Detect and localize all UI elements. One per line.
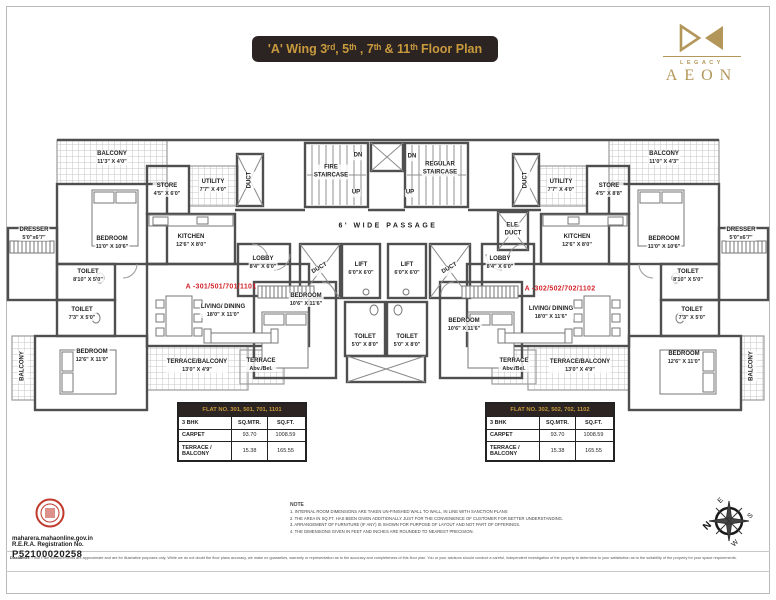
room-label-balcony-bottom-left: BALCONY xyxy=(18,351,28,381)
room-label-toilet-upper-right: TOILET8'10" X 5'0" xyxy=(672,269,704,283)
flat-table-right: FLAT NO. 302, 502, 702, 1102 3 BHK SQ.MT… xyxy=(485,402,615,462)
room-label-lift-2: LIFT6'0"X 6'0" xyxy=(393,262,420,276)
note-item: 2. THE AREA IN SQ.FT. HAS BEEN GIVEN ADD… xyxy=(290,516,540,523)
table-row: TERRACE / BALCONY 15.38 165.55 xyxy=(179,441,305,460)
note-item: 1. INTERNAL ROOM DIMENSIONS ARE TAKEN UN… xyxy=(290,509,540,516)
room-label-kitchen-left: KITCHEN12'6" X 8'0" xyxy=(175,234,207,248)
room-label-toilet-upper-left: TOILET8'10" X 5'0" xyxy=(72,269,104,283)
page-title: 'A' Wing 3ʳᵈ, 5ᵗʰ , 7ᵗʰ & 11ᵗʰ Floor Pla… xyxy=(252,36,498,62)
passage-label: 6' WIDE PASSAGE xyxy=(338,223,439,232)
rera-stamp-icon xyxy=(34,497,66,529)
room-label-bedroom-center-right: BEDROOM10'6" X 11'6" xyxy=(447,318,482,332)
legacy-monogram-icon xyxy=(678,24,726,52)
room-label-duct-top-right: DUCT xyxy=(521,172,531,189)
room-label-bedroom-center-left: BEDROOM10'6" X 11'6" xyxy=(289,293,324,307)
svg-text:E: E xyxy=(717,496,725,504)
room-label-bedroom-bottom-left: BEDROOM12'6" X 11'0" xyxy=(75,349,110,363)
unit-label-right: A -302/502/702/1102 xyxy=(524,286,597,295)
room-label-living-right: LIVING/ DINING18'0" X 11'6" xyxy=(528,306,574,320)
room-label-regular-staircase: REGULARSTAIRCASE xyxy=(422,162,458,177)
room-label-bedroom-top-left: BEDROOM11'0" X 10'6" xyxy=(95,236,130,250)
room-label-balcony-bottom-right: BALCONY xyxy=(747,351,757,381)
divider xyxy=(6,571,770,572)
room-label-terrace-abv-right: TERRACEAbv./Bel. xyxy=(498,358,529,372)
table-row: 3 BHK SQ.MTR. SQ.FT. xyxy=(179,416,305,429)
room-label-balcony-top-left: BALCONY11'3" X 4'0" xyxy=(96,151,128,165)
room-label-duct-top-left: DUCT xyxy=(245,172,255,189)
svg-text:S: S xyxy=(746,512,754,520)
table-row: 3 BHK SQ.MTR. SQ.FT. xyxy=(487,416,613,429)
flat-table-left: FLAT NO. 301, 501, 701, 1101 3 BHK SQ.MT… xyxy=(177,402,307,462)
room-label-dresser-left: DRESSER5'0"x6'7" xyxy=(18,227,49,241)
table-row: TERRACE / BALCONY 15.38 165.55 xyxy=(487,441,613,460)
room-label-toilet-lower-right: TOILET7'3" X 5'0" xyxy=(678,307,707,321)
room-label-balcony-top-right: BALCONY11'0" X 4'3" xyxy=(648,151,680,165)
brand-aeon-text: AEON xyxy=(666,67,738,85)
room-label-bedroom-bottom-right: BEDROOM12'6" X 11'0" xyxy=(667,351,702,365)
room-label-utility-left: UTILITY7'7" X 4'0" xyxy=(199,179,228,193)
notes-heading: NOTE xyxy=(290,502,540,508)
stair-up-left: UP xyxy=(351,189,361,197)
note-item: 3. ARRANGEMENT OF FURNITURE (IF ANY) IS … xyxy=(290,522,540,529)
room-label-lift-1: LIFT6'0"X 6'0" xyxy=(347,262,374,276)
logo-divider xyxy=(663,56,741,57)
brand-logo: LEGACY AEON xyxy=(654,24,750,85)
title-text: 'A' Wing 3ʳᵈ, 5ᵗʰ , 7ᵗʰ & 11ᵗʰ Floor Pla… xyxy=(268,42,482,56)
notes-block: NOTE 1. INTERNAL ROOM DIMENSIONS ARE TAK… xyxy=(290,502,540,536)
room-label-store-right: STORE4'5" X 8'8" xyxy=(595,183,624,197)
room-label-toilet-lower-left: TOILET7'3" X 5'0" xyxy=(68,307,97,321)
room-label-terrace-balcony-right: TERRACE/BALCONY13'0" X 4'9" xyxy=(549,359,611,373)
compass-icon: N E S W xyxy=(698,490,760,552)
room-label-dresser-right: DRESSER5'0"x6'7" xyxy=(725,227,756,241)
room-label-lobby-left: LOBBY8'4" X 6'0" xyxy=(249,256,278,270)
room-label-terrace-abv-left: TERRACEAbv./Bel. xyxy=(245,358,276,372)
svg-text:W: W xyxy=(730,538,740,548)
room-label-lobby-right: LOBBY8'4" X 6'0" xyxy=(486,256,515,270)
rera-label: R.E.R.A. Registration No. xyxy=(12,542,152,548)
rera-block: maharera.mahaonline.gov.in R.E.R.A. Regi… xyxy=(12,497,152,560)
room-label-toilet-center-1: TOILET5'0" X 8'0" xyxy=(351,334,380,348)
note-item: 4. THE DIMENSIONS GIVEN IN FEET AND INCH… xyxy=(290,529,540,536)
flat-table-right-title: FLAT NO. 302, 502, 702, 1102 xyxy=(487,404,613,416)
room-label-store-left: STORE4'5" X 6'0" xyxy=(153,183,182,197)
floor-plan-page: 'A' Wing 3ʳᵈ, 5ᵗʰ , 7ᵗʰ & 11ᵗʰ Floor Pla… xyxy=(0,0,776,600)
unit-label-left: A -301/501/701/1101 xyxy=(185,284,258,293)
room-label-kitchen-right: KITCHEN12'6" X 8'0" xyxy=(561,234,593,248)
table-row: CARPET 93.70 1008.59 xyxy=(487,429,613,442)
room-label-living-left: LIVING/ DINING18'0" X 11'0" xyxy=(200,304,246,318)
room-label-bedroom-top-right: BEDROOM11'0" X 10'6" xyxy=(647,236,682,250)
room-label-toilet-center-2: TOILET5'0" X 8'0" xyxy=(393,334,422,348)
room-label-ele-duct: ELE.DUCT xyxy=(504,223,523,238)
stair-dn-left: DN xyxy=(353,152,364,160)
brand-legacy-text: LEGACY xyxy=(680,60,724,66)
room-label-fire-staircase: FIRESTAIRCASE xyxy=(313,165,349,180)
stair-up-right: UP xyxy=(405,189,415,197)
room-label-terrace-balcony-left: TERRACE/BALCONY13'0" X 4'9" xyxy=(166,359,228,373)
flat-table-left-title: FLAT NO. 301, 501, 701, 1101 xyxy=(179,404,305,416)
room-label-utility-right: UTILITY7'7" X 4'0" xyxy=(547,179,576,193)
stair-dn-right: DN xyxy=(407,153,418,161)
table-row: CARPET 93.70 1008.59 xyxy=(179,429,305,442)
disclaimer-text: Disclaimer: Floor Plan measurements are … xyxy=(10,556,766,560)
